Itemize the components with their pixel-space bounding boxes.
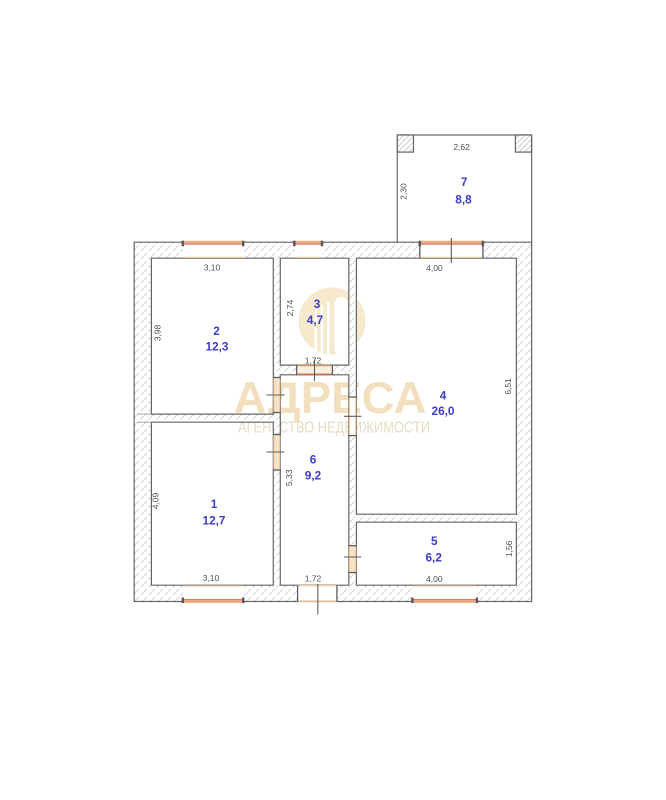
- svg-text:1,72: 1,72: [305, 355, 322, 365]
- svg-text:1,56: 1,56: [504, 540, 514, 557]
- svg-text:3,10: 3,10: [203, 573, 220, 583]
- svg-text:2,74: 2,74: [285, 299, 295, 316]
- svg-text:4,7: 4,7: [307, 313, 324, 327]
- svg-text:1,72: 1,72: [305, 573, 322, 583]
- svg-text:2: 2: [213, 324, 220, 338]
- svg-text:5: 5: [431, 534, 438, 548]
- svg-text:12,7: 12,7: [203, 514, 226, 528]
- svg-text:5,33: 5,33: [284, 469, 294, 486]
- svg-text:3,10: 3,10: [204, 263, 221, 273]
- svg-text:2,30: 2,30: [398, 183, 408, 200]
- svg-text:2,62: 2,62: [453, 142, 470, 152]
- svg-text:7: 7: [461, 175, 468, 189]
- svg-text:6: 6: [310, 453, 317, 467]
- svg-text:4,00: 4,00: [426, 574, 443, 584]
- svg-text:4,00: 4,00: [426, 263, 443, 273]
- svg-text:3: 3: [314, 297, 321, 311]
- svg-text:9,2: 9,2: [305, 469, 322, 483]
- svg-text:8,8: 8,8: [455, 193, 472, 207]
- svg-text:12,3: 12,3: [206, 340, 229, 354]
- svg-text:6,51: 6,51: [503, 378, 513, 395]
- svg-text:4,09: 4,09: [151, 492, 161, 509]
- svg-text:6,2: 6,2: [425, 551, 442, 565]
- svg-text:4: 4: [440, 389, 447, 403]
- svg-text:1: 1: [211, 497, 218, 511]
- svg-text:3,98: 3,98: [153, 324, 163, 341]
- svg-text:26,0: 26,0: [432, 404, 455, 418]
